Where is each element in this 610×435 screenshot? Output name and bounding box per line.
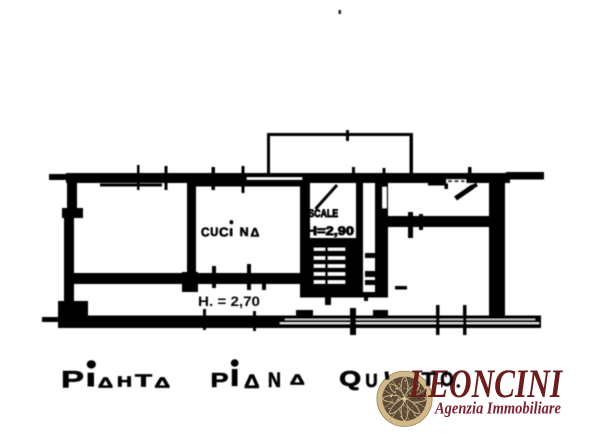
svg-text:Δ: Δ [251,228,260,240]
svg-text:Agenzia Immobiliare: Agenzia Immobiliare [434,399,561,418]
svg-text:T: T [135,371,152,391]
svg-text:U: U [210,227,218,239]
svg-text:H. = 2,70: H. = 2,70 [198,294,260,309]
svg-text:Δ: Δ [155,375,171,392]
svg-text:P: P [211,370,229,392]
svg-text:P: P [61,367,84,394]
svg-text:Δ: Δ [244,372,260,393]
svg-text:Δ: Δ [98,375,113,392]
svg-text:SCALE: SCALE [309,208,339,220]
svg-text:H=2,90: H=2,90 [307,224,355,238]
svg-text:C: C [201,225,210,239]
svg-text:N: N [268,369,281,392]
svg-text:H: H [117,374,132,391]
svg-text:T: T [422,368,436,389]
svg-text:Δ: Δ [290,372,305,389]
svg-text:Q: Q [339,367,361,391]
svg-text:O: O [440,369,453,391]
svg-text:N: N [240,227,249,239]
svg-text:C: C [219,225,229,239]
svg-text:U: U [365,371,377,391]
